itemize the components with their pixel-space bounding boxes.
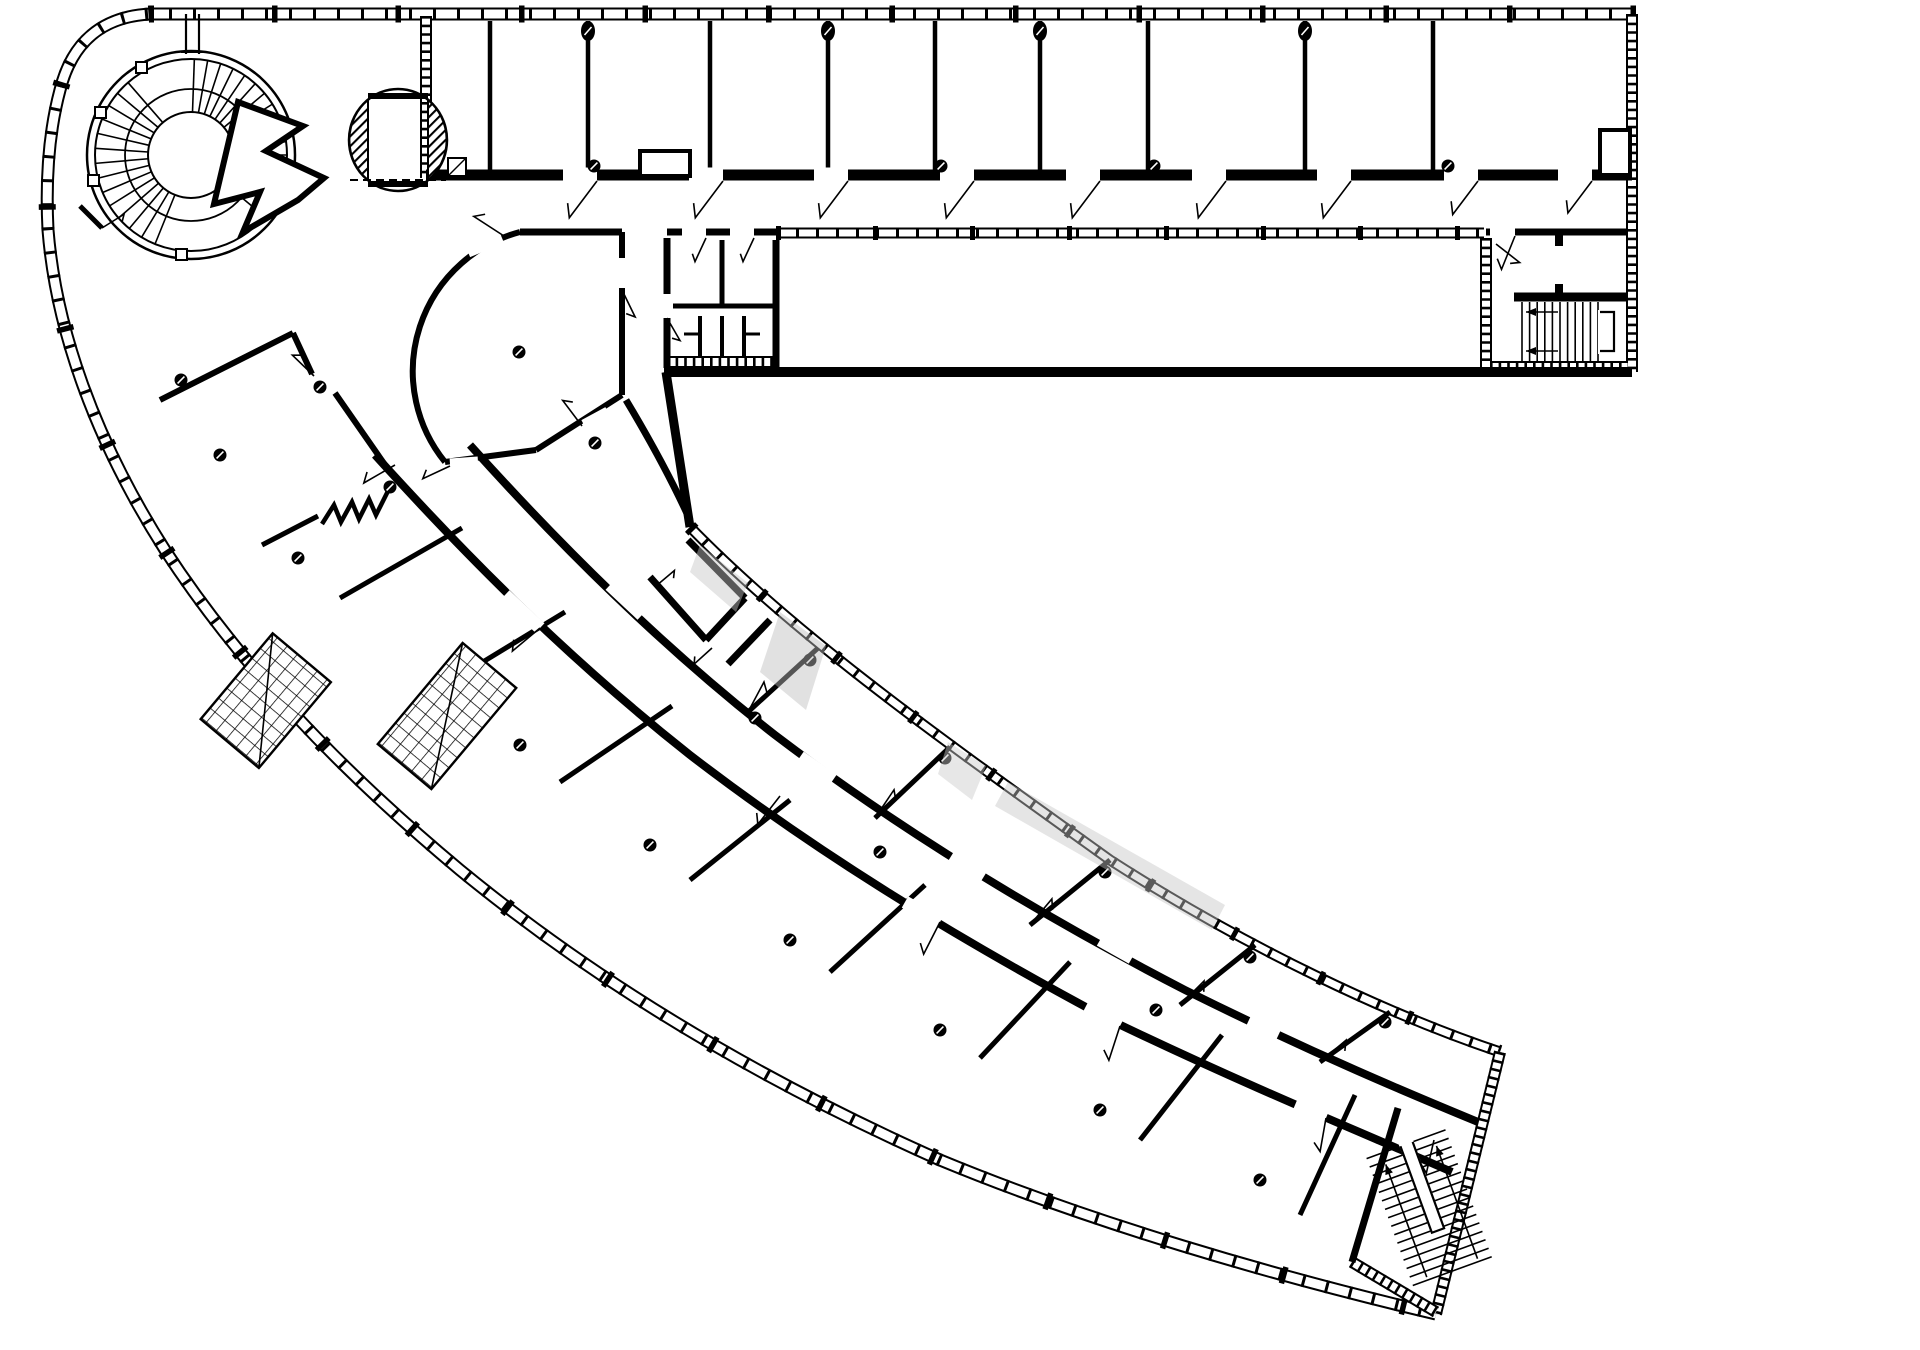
spiral-staircase: Spiral staircase — [80, 14, 324, 260]
walls — [160, 175, 1632, 1262]
top-wing-partitions — [490, 21, 1433, 170]
hatched-walls — [426, 14, 1632, 1314]
folding-partition: Folding partition zigzag symbol — [322, 487, 390, 524]
east-stair: Dog-leg staircase, east core — [1522, 302, 1618, 362]
structural-columns: Structural columns — [175, 21, 1455, 1187]
entrance-vestibule: Oval entrance vestibule — [349, 89, 447, 191]
door-openings — [314, 175, 1592, 1140]
floor-plan-drawing: Black and white architectural floor plan… — [0, 0, 1920, 1350]
floor-plan-page: Black and white architectural floor plan… — [0, 0, 1920, 1350]
